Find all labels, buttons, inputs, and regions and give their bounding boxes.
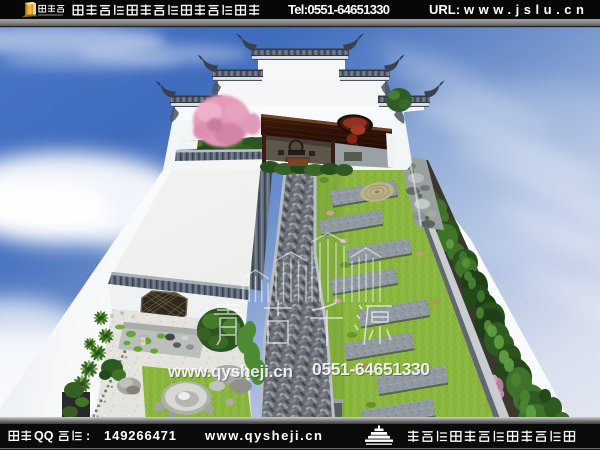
svg-text:URL:: URL: [429,2,460,17]
svg-text:www.qysheji.cn: www.qysheji.cn [204,428,322,443]
svg-text:www.qysheji.cn: www.qysheji.cn [167,362,293,381]
svg-text:QQ: QQ [34,429,54,443]
svg-text:Tel:0551-64651330: Tel:0551-64651330 [288,2,390,17]
svg-text:149266471: 149266471 [104,428,176,443]
svg-text:www.jslu.cn: www.jslu.cn [463,2,584,17]
svg-text:0551-64651330: 0551-64651330 [312,359,430,379]
svg-text::: : [86,429,90,443]
